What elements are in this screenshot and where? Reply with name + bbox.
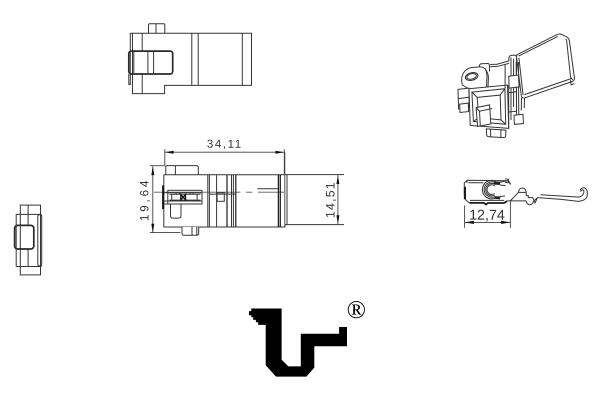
svg-text:®: ®: [347, 295, 366, 324]
svg-text:14,51: 14,51: [324, 181, 338, 218]
svg-text:34,11: 34,11: [207, 139, 243, 151]
svg-text:12,74: 12,74: [469, 208, 505, 224]
svg-text:19,64: 19,64: [140, 178, 152, 221]
